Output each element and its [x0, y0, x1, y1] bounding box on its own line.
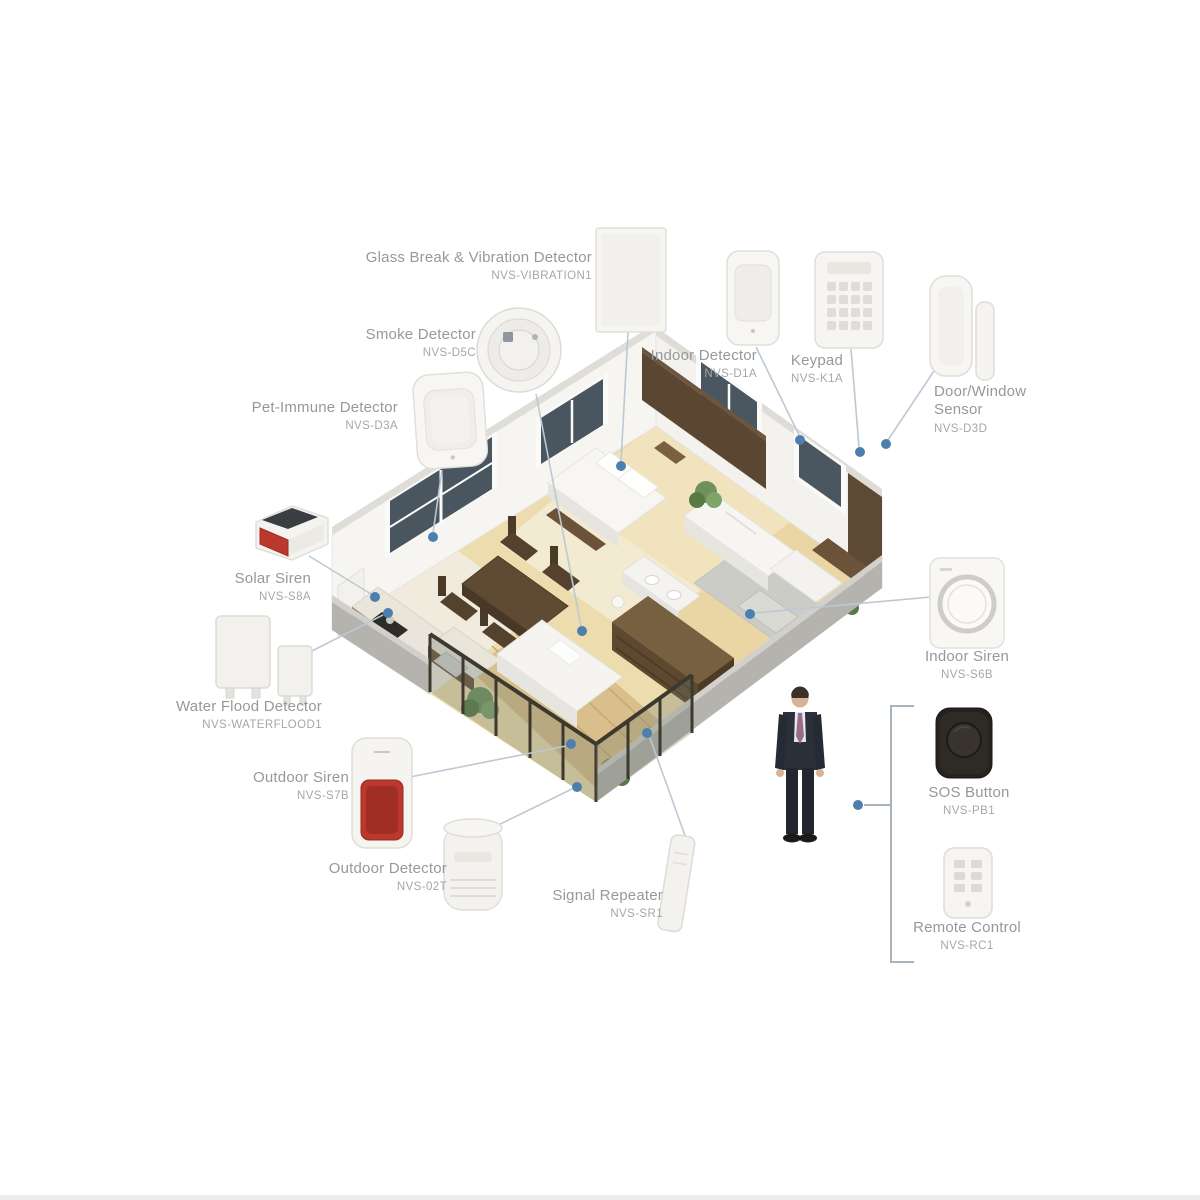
label-remote-control-name: Remote Control	[913, 919, 1021, 936]
dot-solar-siren	[370, 592, 380, 602]
label-outdoor-detector-model: NVS-02T	[297, 880, 447, 894]
label-signal-repeater-name: Signal Repeater	[552, 887, 663, 904]
dot-outdoor-siren	[566, 739, 576, 749]
label-signal-repeater: Signal Repeater NVS-SR1	[513, 887, 663, 921]
water-flood-detector-illustration	[216, 616, 312, 705]
label-water-flood-name: Water Flood Detector	[176, 698, 322, 715]
label-smoke-detector: Smoke Detector NVS-D5C	[316, 326, 476, 360]
label-indoor-siren-name: Indoor Siren	[925, 648, 1009, 665]
dot-person	[853, 800, 863, 810]
label-glass-break-name: Glass Break & Vibration Detector	[366, 249, 592, 266]
dot-glass-break	[616, 461, 626, 471]
floorplan-illustration	[0, 0, 1200, 1200]
door-window-sensor-illustration	[930, 276, 994, 380]
indoor-detector-illustration	[727, 251, 779, 345]
label-glass-break-model: NVS-VIBRATION1	[312, 269, 592, 283]
label-outdoor-detector: Outdoor Detector NVS-02T	[297, 860, 447, 894]
bottom-edge-strip	[0, 1195, 1200, 1200]
glass-break-detector-illustration	[596, 228, 666, 332]
label-smoke-name: Smoke Detector	[366, 326, 476, 343]
label-signal-repeater-model: NVS-SR1	[513, 907, 663, 921]
label-door-window-sensor: Door/Window Sensor NVS-D3D	[934, 383, 1046, 436]
label-door-window-name: Door/Window Sensor	[934, 383, 1026, 418]
smoke-detector-illustration	[477, 308, 561, 392]
dot-repeater	[642, 728, 652, 738]
dot-outdoor-detector	[572, 782, 582, 792]
label-glass-break-detector: Glass Break & Vibration Detector NVS-VIB…	[312, 249, 592, 283]
label-solar-siren-model: NVS-S8A	[181, 590, 311, 604]
label-outdoor-siren-model: NVS-S7B	[219, 789, 349, 803]
label-solar-siren: Solar Siren NVS-S8A	[181, 570, 311, 604]
label-pet-immune-detector: Pet-Immune Detector NVS-D3A	[218, 399, 398, 433]
label-outdoor-siren: Outdoor Siren NVS-S7B	[219, 769, 349, 803]
connector-repeater	[650, 738, 688, 844]
dot-indoor-siren	[745, 609, 755, 619]
pet-immune-detector-illustration	[412, 371, 488, 470]
label-smoke-model: NVS-D5C	[316, 346, 476, 360]
label-keypad-name: Keypad	[791, 352, 843, 369]
label-door-window-model: NVS-D3D	[934, 422, 1046, 436]
solar-siren-illustration	[256, 506, 328, 560]
label-indoor-siren-model: NVS-S6B	[897, 668, 1037, 682]
label-pet-immune-name: Pet-Immune Detector	[252, 399, 398, 416]
dot-keypad	[855, 447, 865, 457]
label-remote-control: Remote Control NVS-RC1	[892, 919, 1042, 953]
sos-button-illustration	[936, 708, 992, 778]
label-remote-control-model: NVS-RC1	[892, 939, 1042, 953]
connector-keypad	[851, 349, 859, 447]
label-pet-immune-model: NVS-D3A	[218, 419, 398, 433]
outdoor-detector-illustration	[444, 819, 502, 910]
label-outdoor-siren-name: Outdoor Siren	[253, 769, 349, 786]
person-illustration	[775, 687, 825, 843]
remote-control-illustration	[944, 848, 992, 918]
dot-smoke	[577, 626, 587, 636]
connector-outdoor-detector	[488, 789, 572, 830]
smart-home-security-diagram: Glass Break & Vibration Detector NVS-VIB…	[0, 0, 1200, 1200]
label-outdoor-detector-name: Outdoor Detector	[329, 860, 447, 877]
connector-door-window	[888, 368, 936, 440]
label-sos-button-model: NVS-PB1	[899, 804, 1039, 818]
label-keypad: Keypad NVS-K1A	[733, 352, 843, 386]
dot-indoor-detector	[795, 435, 805, 445]
keypad-illustration	[815, 252, 883, 348]
label-sos-button: SOS Button NVS-PB1	[899, 784, 1039, 818]
indoor-siren-illustration	[930, 558, 1004, 648]
label-sos-button-name: SOS Button	[928, 784, 1009, 801]
label-water-flood-model: NVS-WATERFLOOD1	[132, 718, 322, 732]
outdoor-siren-illustration	[352, 738, 412, 848]
label-keypad-model: NVS-K1A	[733, 372, 843, 386]
label-indoor-siren: Indoor Siren NVS-S6B	[897, 648, 1037, 682]
label-water-flood-detector: Water Flood Detector NVS-WATERFLOOD1	[132, 698, 322, 732]
label-solar-siren-name: Solar Siren	[235, 570, 311, 587]
dot-door-window	[881, 439, 891, 449]
dot-water-flood	[383, 608, 393, 618]
dot-pet-immune	[428, 532, 438, 542]
